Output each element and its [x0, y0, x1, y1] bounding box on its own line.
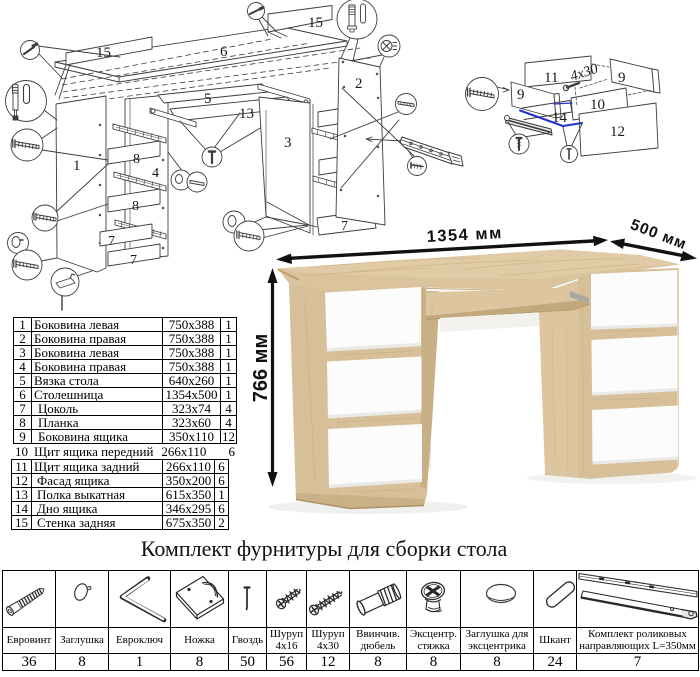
svg-text:9: 9 — [618, 70, 626, 86]
svg-text:8: 8 — [133, 152, 140, 167]
svg-text:766 мм: 766 мм — [250, 334, 272, 403]
svg-text:2: 2 — [355, 76, 363, 92]
svg-text:15: 15 — [96, 45, 111, 61]
svg-text:9: 9 — [517, 87, 525, 103]
svg-text:15: 15 — [308, 15, 323, 31]
svg-text:13: 13 — [239, 106, 254, 122]
svg-text:11: 11 — [544, 70, 558, 86]
svg-text:3: 3 — [284, 135, 292, 151]
svg-text:7: 7 — [108, 234, 115, 249]
svg-text:8: 8 — [132, 199, 139, 214]
svg-text:7: 7 — [130, 253, 137, 268]
svg-text:1354 мм: 1354 мм — [426, 224, 503, 246]
svg-text:12: 12 — [610, 124, 625, 140]
svg-text:7: 7 — [341, 219, 348, 234]
svg-text:1: 1 — [73, 158, 81, 174]
svg-text:4: 4 — [152, 166, 159, 181]
